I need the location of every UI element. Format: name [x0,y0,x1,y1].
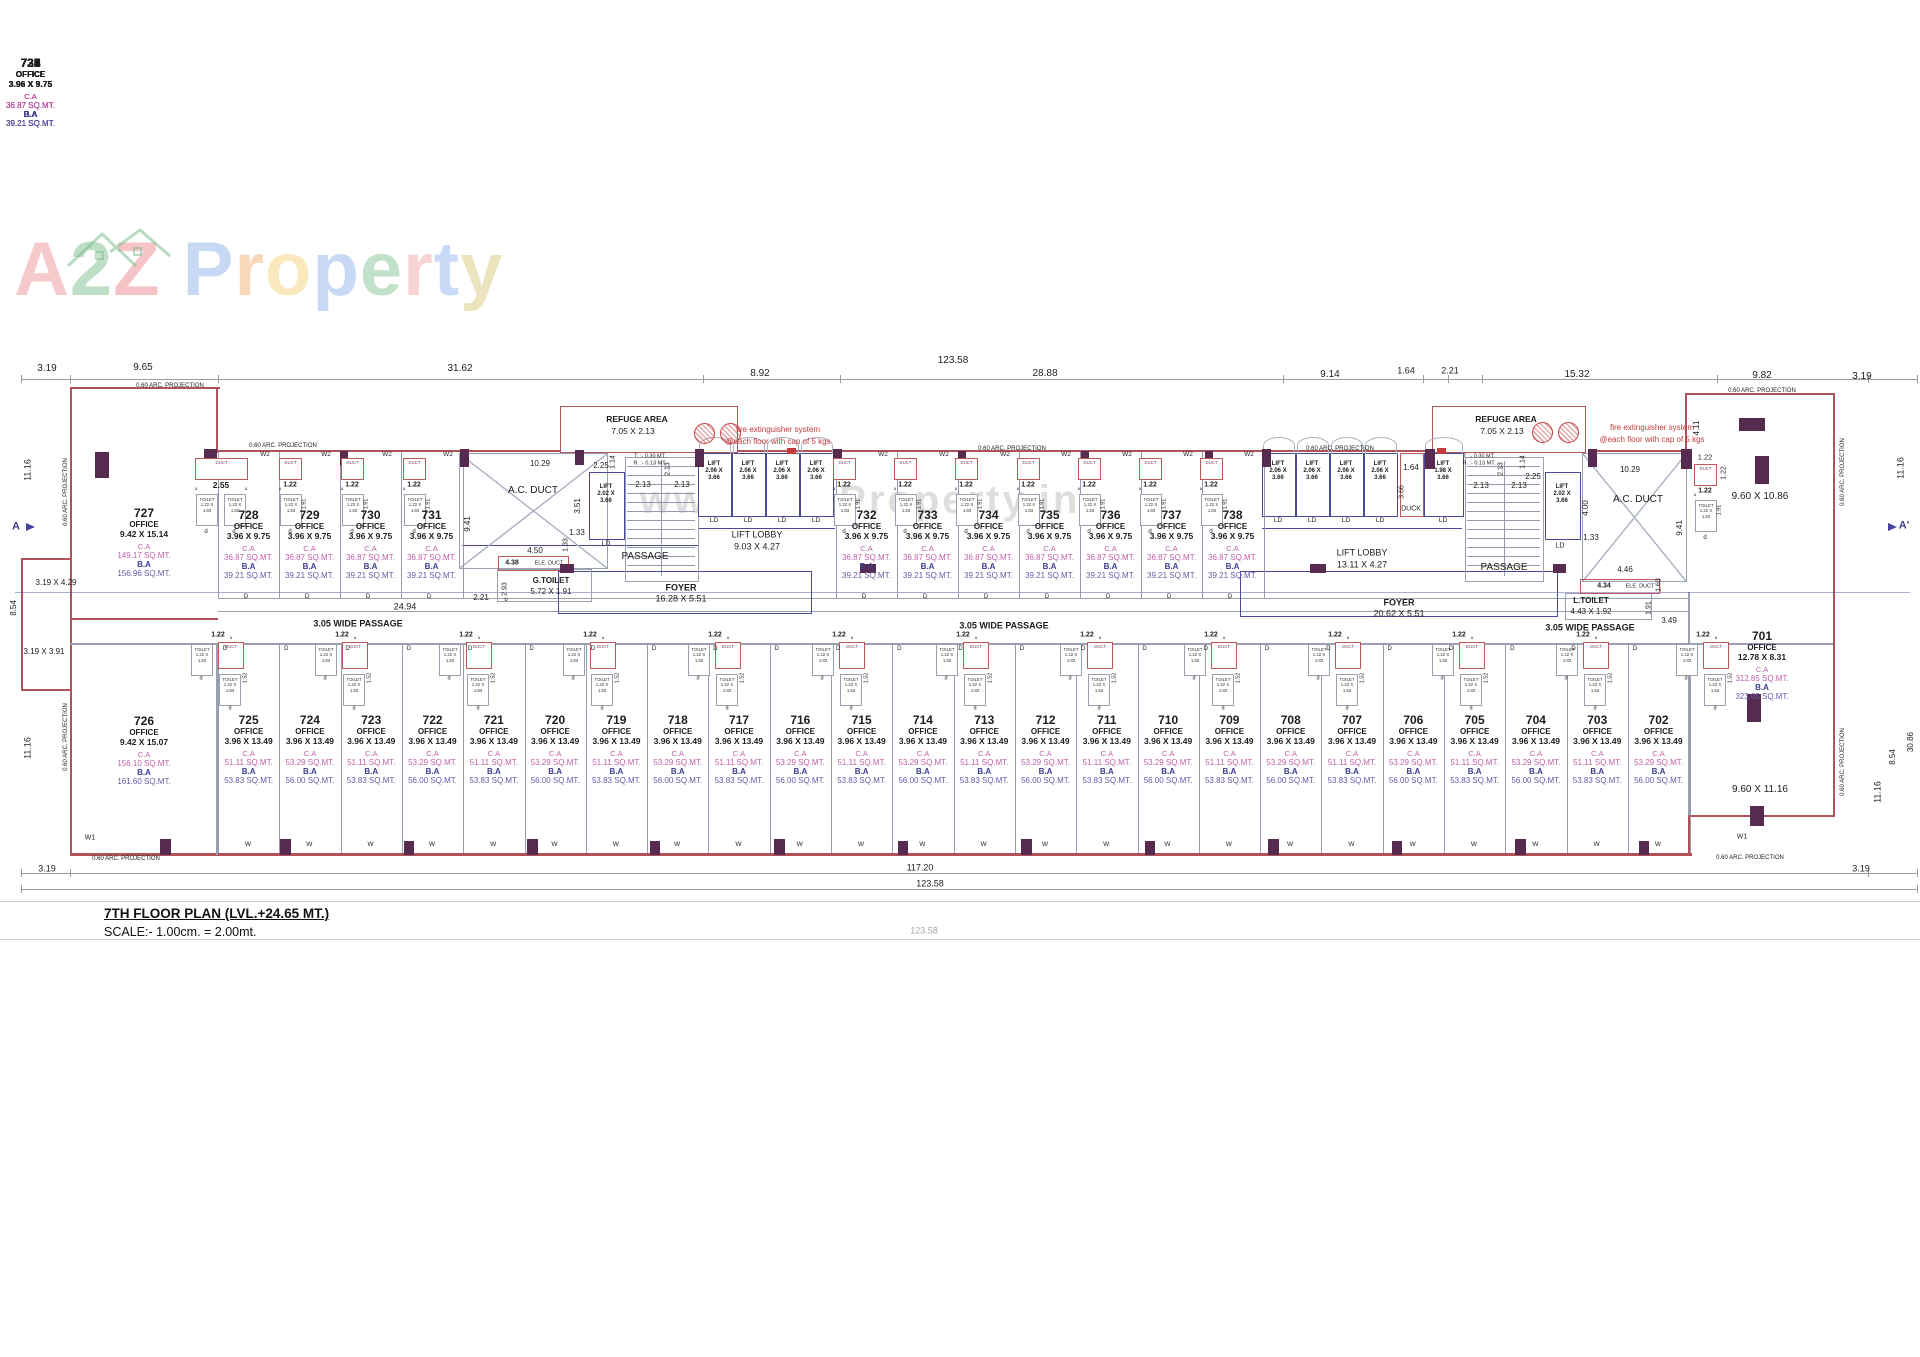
office-number: 720 [525,713,586,727]
duct-box: DUCT [279,458,302,480]
toilet-size2: 1.83 [316,658,336,663]
annotation-label: 3.19 X 3.91 [24,648,65,656]
duct-dim: 1.22 [345,482,359,489]
window-mark: W [981,842,987,849]
annotation-label: fire extinguisher system [1610,424,1694,432]
door-small: d [973,706,976,712]
u-mark: u [975,636,978,641]
ca-label: C.A [708,749,769,758]
ba-value: 156.96 SQ.MT. [74,569,214,578]
toilet-duct-cluster: 1.22TOILET1.22 X1.83DUCTTOILET1.22 X1.83… [1556,630,1610,726]
ba-value: 53.83 SQ.MT. [1567,776,1628,785]
duct-label: DUCT [347,460,359,465]
annotation-label: 2.25 [593,462,609,470]
ba-value: 39.21 SQ.MT. [1202,571,1263,580]
ba-value: 56.00 SQ.MT. [647,776,708,785]
ba-label: B.A [1567,767,1628,776]
column-block [1145,841,1155,855]
wall-line [70,853,1692,856]
ca-value: 51.11 SQ.MT. [954,758,1015,767]
annotation-label: 2.13 [635,481,651,489]
office-size: 3.96 X 13.49 [831,736,892,746]
column-block [774,839,785,855]
stair-tread [627,493,695,494]
annotation-label: 3.19 [1852,865,1870,874]
annotation-label: 2.13 [674,481,690,489]
ca-value: 36.87 SQ.MT. [897,553,958,562]
ca-value: 51.11 SQ.MT. [1076,758,1137,767]
annotation-label: 2.21 [473,594,489,602]
ca-value: 312.85 SQ.MT. [1692,674,1832,683]
ba-label: B.A [1505,767,1566,776]
wall-line [70,618,218,620]
office-size: 3.96 X 13.49 [1076,736,1137,746]
door-small: d [600,706,603,712]
ca-label: C.A [892,749,953,758]
toilet-depth-dim: 1.52 [988,673,994,684]
toilet-size2: 1.83 [1089,688,1109,693]
ca-label: C.A [1321,749,1382,758]
window-mark: W [1226,842,1232,849]
office-size: 3.96 X 13.49 [708,736,769,746]
office-number: 706 [1383,713,1444,727]
door-mark: D [1388,646,1392,652]
lift-width: 2.06 X [1262,468,1294,475]
lift-door-label: LD [812,518,820,525]
office-number: 718 [647,713,708,727]
annotation-label: FOYER [665,584,696,593]
office-number: 701 [1692,629,1832,643]
office-type-label: OFFICE [525,727,586,736]
annotation-label: 4.43 X 1.92 [1571,608,1612,616]
fire-symbol-icon [1532,422,1553,443]
toilet-box: TOILET1.22 X1.83 [1088,674,1110,706]
office-type-label: OFFICE [1199,727,1260,736]
toilet-box: TOILET1.22 X1.83 [1060,644,1082,676]
office-label-stack: 719OFFICE3.96 X 13.49C.A51.11 SQ.MT.B.A5… [586,713,647,785]
office-label-stack: 726OFFICE9.42 X 15.07C.A156.10 SQ.MT.B.A… [74,714,214,786]
lift-width: 2.06 X [800,468,832,475]
toilet-depth-dim: 1.52 [1360,673,1366,684]
office-number: 717 [708,713,769,727]
office-type-label: OFFICE [1505,727,1566,736]
ca-label: C.A [831,749,892,758]
toilet-size2: 1.83 [1061,658,1081,663]
toilet-box: TOILET1.22 X1.83 [1695,500,1717,532]
duct-label: DUCT [1206,460,1218,465]
ca-label: C.A [1199,749,1260,758]
ba-label: B.A [1015,767,1076,776]
ba-label: B.A [831,767,892,776]
dimension-tick [70,375,71,383]
window-mark: W [551,842,557,849]
annotation-label: 10.29 [1620,466,1640,474]
door-mark: D [1571,646,1575,652]
door-mark: D [1020,646,1024,652]
u-mark: u [833,487,836,492]
ca-value: 36.87 SQ.MT. [279,553,340,562]
annotation-label: A.C. DUCT [1613,495,1663,505]
office-type-label: OFFICE [1321,727,1382,736]
annotation-label: @each floor with cap of 5 kgs [1599,436,1704,444]
annotation-label: 1.64 [1397,367,1415,376]
toilet-box: TOILET1.22 X1.83 [1336,674,1358,706]
annotation-label: REFUGE AREA [606,415,668,424]
logo-letter: p [312,227,359,312]
stair-tread [627,547,695,548]
office-size: 3.96 X 13.49 [1505,736,1566,746]
office-type-label: OFFICE [770,727,831,736]
door-small: d [1713,706,1716,712]
ba-label: B.A [1628,767,1689,776]
office-type-label: OFFICE [586,727,647,736]
dimension-tick [1917,869,1918,877]
annotation-label: 1.14 [610,455,617,469]
toilet-depth-dim: 1.52 [491,673,497,684]
dimension-tick [218,375,219,383]
u-mark: u [1223,636,1226,641]
toilet-depth-dim: 1.91 [1717,505,1723,516]
ca-value: 53.29 SQ.MT. [1505,758,1566,767]
office-type-label: OFFICE [340,522,401,531]
ba-label: B.A [1141,562,1202,571]
window-type-label: W2 [382,452,392,459]
office-type-label: OFFICE [1015,727,1076,736]
window-mark: W [1164,842,1170,849]
u-mark: u [341,487,344,492]
duct-dim: 1.22 [211,632,225,639]
ca-value: 36.87 SQ.MT. [1019,553,1080,562]
door-mark: D [775,646,779,652]
door-mark: D [984,594,988,600]
lift-label: LIFT [698,461,730,468]
toilet-depth-dim: 1.52 [1608,673,1614,684]
dimension-tick [1423,375,1424,383]
lift-depth: 3.66 [1364,475,1396,482]
office-label-stack: 715OFFICE3.96 X 13.49C.A51.11 SQ.MT.B.A5… [831,713,892,785]
office-size: 3.96 X 13.49 [341,736,402,746]
office-number: 737 [1141,508,1202,522]
toilet-box: TOILET1.22 X1.83 [964,674,986,706]
office-label-stack: 730OFFICE3.96 X 9.75C.A36.87 SQ.MT.B.A39… [340,508,401,580]
ba-value: 56.00 SQ.MT. [770,776,831,785]
lift-label: LIFT [1545,484,1579,491]
wall-line [1833,393,1835,817]
ca-value: 53.29 SQ.MT. [402,758,463,767]
office-number: 719 [586,713,647,727]
door-mark: D [958,646,962,652]
stair-tread [627,475,695,476]
u-mark: u [1595,636,1598,641]
office-label-stack: 737OFFICE3.96 X 9.75C.A36.87 SQ.MT.B.A39… [1141,508,1202,580]
duct-label: DUCT [839,460,851,465]
ba-label: B.A [892,767,953,776]
column-block [1588,449,1597,467]
lift-box [1545,472,1581,540]
ca-value: 36.87 SQ.MT. [0,101,61,110]
fire-marker [1437,448,1446,454]
ba-value: 53.83 SQ.MT. [1321,776,1382,785]
duct-dim: 1.22 [1452,632,1466,639]
office-type-label: OFFICE [218,727,279,736]
window-mark: W [858,842,864,849]
lift-label-stack: LIFT2.06 X3.66 [732,461,764,483]
toilet-size2: 1.83 [344,688,364,693]
door-small: d [1469,706,1472,712]
office-size: 3.96 X 13.49 [647,736,708,746]
annotation-label: 1.33 [563,538,570,552]
office-number: 725 [218,713,279,727]
wall-line [21,558,23,691]
annotation-label: 13.11 X 4.27 [1337,561,1387,570]
duct-dim: 1.22 [1576,632,1590,639]
toilet-box: TOILET1.22 X1.83 [315,644,337,676]
annotation-label: 9.82 [1752,371,1771,381]
annotation-label: REFUGE AREA [1475,415,1537,424]
annotation-label: 8.92 [750,369,769,379]
ca-label: C.A [525,749,586,758]
door-small: d [1192,676,1195,682]
column-block [1639,841,1649,855]
column-block [1021,839,1032,855]
window-type-label: W2 [1183,452,1193,459]
duct-box: DUCT [963,642,989,669]
lift-depth: 3.66 [1296,475,1328,482]
ca-value: 36.87 SQ.MT. [1080,553,1141,562]
dimension-tick [703,375,704,383]
u-mark: u [1017,487,1020,492]
door-mark: D [1045,594,1049,600]
ca-value: 36.87 SQ.MT. [401,553,462,562]
office-number: 716 [770,713,831,727]
door-mark: D [1204,646,1208,652]
u-mark: u [279,487,282,492]
annotation-label: 11.16 [24,459,33,481]
lift-door-label: LD [710,518,718,525]
window-mark: W [674,842,680,849]
lift-depth: 3.66 [1545,498,1579,505]
duct-dim: 1.22 [837,482,851,489]
ba-value: 53.83 SQ.MT. [586,776,647,785]
annotation-label: 9.60 X 11.16 [1732,785,1788,795]
column-block [460,449,469,467]
lift-label: LIFT [1424,461,1462,468]
lift-depth: 3.66 [732,475,764,482]
dimension-tick [21,375,22,383]
lift-depth: 3.66 [800,475,832,482]
ca-value: 51.11 SQ.MT. [1567,758,1628,767]
door-mark: D [366,594,370,600]
ca-value: 53.29 SQ.MT. [1383,758,1444,767]
wall-line [1588,450,1687,452]
toilet-size2: 1.83 [1185,658,1205,663]
toilet-box: TOILET1.22 X1.83 [936,644,958,676]
office-number: 705 [1444,713,1505,727]
lift-width: 2.06 X [698,468,730,475]
annotation-label: 9.60 X 10.86 [1732,492,1789,502]
office-label-stack: 727OFFICE9.42 X 15.14C.A149.17 SQ.MT.B.A… [74,506,214,578]
ca-label: C.A [279,749,340,758]
office-number: 738 [1202,508,1263,522]
stair-tread [627,520,695,521]
annotation-label: 7.05 X 2.13 [1480,427,1523,436]
annotation-label: fire extinguisher system [736,426,820,434]
toilet-size2: 1.83 [440,658,460,663]
lift-door-label: LD [744,518,752,525]
column-block [1739,418,1765,431]
u-mark: u [955,487,958,492]
door-small: d [1068,676,1071,682]
door-mark: D [862,594,866,600]
ba-label: B.A [897,562,958,571]
office-label-stack: 724OFFICE3.96 X 13.49C.A53.29 SQ.MT.B.A5… [279,713,340,785]
column-block [160,839,171,855]
toilet-depth-dim: 1.52 [615,673,621,684]
stair-tread [1467,511,1540,512]
logo-letter: t [434,227,460,312]
ca-label: C.A [770,749,831,758]
office-type-label: OFFICE [218,522,279,531]
window-mark: W [1471,842,1477,849]
annotation-label: 3.19 [37,364,56,374]
lift-label-stack: LIFT2.06 X3.66 [1330,461,1362,483]
wall-line [216,387,218,453]
toilet-duct-cluster: 1.22TOILET1.22 X1.83DUCTTOILET1.22 X1.83… [812,630,866,726]
annotation-label: A' [1899,521,1910,532]
office-size: 3.96 X 13.49 [402,736,463,746]
office-number: 732 [836,508,897,522]
lift-depth: 3.66 [1424,475,1462,482]
lift-depth: 3.66 [766,475,798,482]
office-number: 708 [1260,713,1321,727]
lift-label: LIFT [1262,461,1294,468]
column-block [898,841,908,855]
u-mark: u [1099,636,1102,641]
ca-value: 51.11 SQ.MT. [1199,758,1260,767]
toilet-depth-dim: 1.52 [740,673,746,684]
toilet-box: TOILET1.22 X1.83 [812,644,834,676]
ba-value: 39.21 SQ.MT. [836,571,897,580]
office-label-stack: 709OFFICE3.96 X 13.49C.A51.11 SQ.MT.B.A5… [1199,713,1260,785]
ba-label: B.A [74,768,214,777]
office-number: 722 [402,713,463,727]
office-number: 738 [0,56,61,70]
ca-value: 51.11 SQ.MT. [1444,758,1505,767]
office-size: 3.96 X 13.49 [586,736,647,746]
u-mark: u [1471,636,1474,641]
ba-label: B.A [1260,767,1321,776]
toilet-box: TOILET1.22 X1.83 [191,644,213,676]
toilet-duct-cluster: 1.22TOILET1.22 X1.83DUCTTOILET1.22 X1.83… [563,630,617,726]
duct-dim: 1.22 [407,482,421,489]
lift-door-label: LD [1342,518,1350,525]
ca-label: C.A [0,92,61,101]
office-size: 3.96 X 13.49 [1444,736,1505,746]
ba-label: B.A [0,110,61,119]
ca-value: 149.17 SQ.MT. [74,551,214,560]
toilet-duct-cluster: 1.22TOILET1.22 X1.83DUCTTOILET1.22 X1.83… [191,630,245,726]
door-small: d [447,676,450,682]
ca-label: C.A [1444,749,1505,758]
ba-value: 53.83 SQ.MT. [954,776,1015,785]
annotation-label: 123.58 [910,927,938,936]
annotation-label: 3.05 WIDE PASSAGE [1545,624,1634,633]
annotation-label: 2.25 [1525,473,1541,481]
door-mark: D [244,594,248,600]
toilet-box: TOILET1.22 X1.83 [591,674,613,706]
dimension-tick [1717,375,1718,383]
lift-label-stack: LIFT2.06 X3.66 [698,461,730,483]
office-type-label: OFFICE [954,727,1015,736]
office-size: 3.96 X 9.75 [0,79,61,89]
house-icon [62,222,182,270]
plan-title: 7TH FLOOR PLAN (LVL.+24.65 MT.) [104,906,329,921]
annotation-label: 123.58 [916,880,944,889]
lift-door-label: LD [1274,518,1282,525]
fire-symbol-icon [694,423,715,444]
stair-tread [627,502,695,503]
ba-label: B.A [770,767,831,776]
ba-label: B.A [1692,683,1832,692]
toilet-size2: 1.83 [192,658,212,663]
office-type-label: OFFICE [1141,522,1202,531]
ba-value: 56.00 SQ.MT. [1015,776,1076,785]
annotation-label: 2.21 [1441,367,1459,376]
ca-value: 36.87 SQ.MT. [1141,553,1202,562]
ca-value: 51.11 SQ.MT. [1321,758,1382,767]
office-number: 723 [341,713,402,727]
ba-value: 39.21 SQ.MT. [218,571,279,580]
office-label-stack: 713OFFICE3.96 X 13.49C.A51.11 SQ.MT.B.A5… [954,713,1015,785]
office-size: 3.96 X 13.49 [525,736,586,746]
door-mark: D [652,646,656,652]
duct-dim: 1.22 [1204,632,1218,639]
window-mark: W [613,842,619,849]
toilet-box: TOILET1.22 X1.83 [716,674,738,706]
annotation-label: G.TOILET [533,577,570,585]
office-number: 703 [1567,713,1628,727]
ba-value: 56.00 SQ.MT. [1505,776,1566,785]
toilet-depth-dim: 1.52 [1236,673,1242,684]
ca-value: 51.11 SQ.MT. [463,758,524,767]
lift-label-stack: LIFT2.06 X3.66 [1262,461,1294,483]
office-label-stack: 712OFFICE3.96 X 13.49C.A53.29 SQ.MT.B.A5… [1015,713,1076,785]
ca-label: C.A [279,544,340,553]
window-mark: W [1594,842,1600,849]
toilet-size2: 1.83 [937,658,957,663]
office-type-label: OFFICE [647,727,708,736]
office-number: 704 [1505,713,1566,727]
ca-label: C.A [647,749,708,758]
office-label-stack: 733OFFICE3.96 X 9.75C.A36.87 SQ.MT.B.A39… [897,508,958,580]
ca-label: C.A [1076,749,1137,758]
office-label-stack: 706OFFICE3.96 X 13.49C.A53.29 SQ.MT.B.A5… [1383,713,1444,785]
toilet-duct-cluster: DUCT1.22TOILET1.22 X1.83d1.91u [1692,462,1718,554]
door-small: d [323,676,326,682]
annotation-label: W1 [1737,834,1748,841]
column-block [1750,806,1764,826]
office-type-label: OFFICE [74,728,214,737]
office-size: 3.96 X 9.75 [401,531,462,541]
office-size: 3.96 X 9.75 [218,531,279,541]
ca-value: 51.11 SQ.MT. [708,758,769,767]
office-number: 710 [1138,713,1199,727]
ba-value: 53.83 SQ.MT. [341,776,402,785]
annotation-label: @each floor with cap of 5 kgs [725,438,830,446]
office-number: 707 [1321,713,1382,727]
ba-value: 161.60 SQ.MT. [74,777,214,786]
door-mark: D [1228,594,1232,600]
